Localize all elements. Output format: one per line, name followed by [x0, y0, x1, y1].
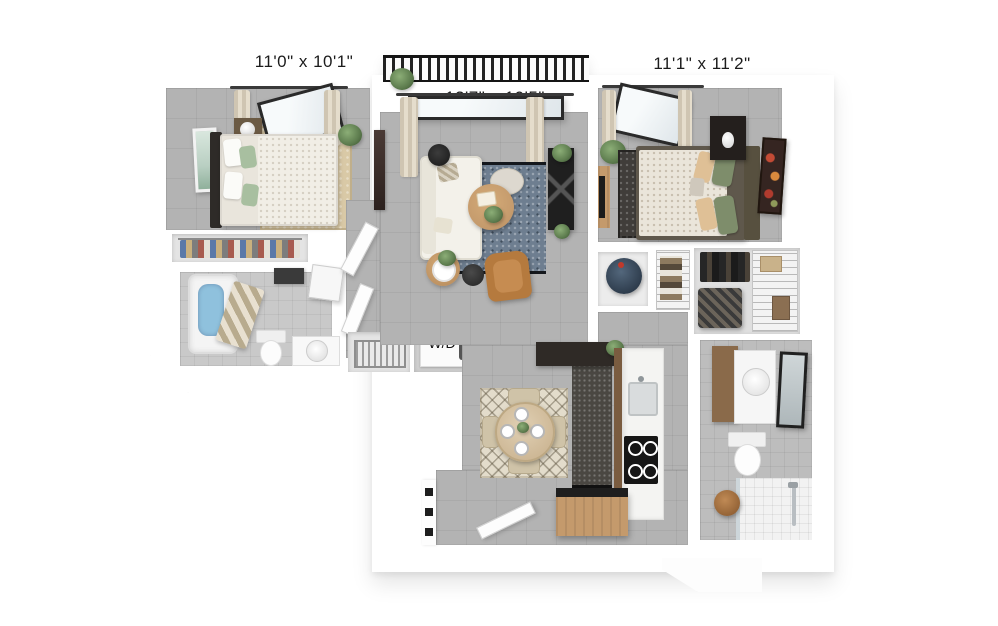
- burner: [643, 441, 658, 456]
- bedroom-2-curtain-rod: [602, 85, 704, 88]
- shower-fixture: [792, 486, 796, 526]
- dining-centerpiece: [517, 422, 529, 433]
- woven-bench: [698, 288, 742, 328]
- kitchen-counter: [622, 348, 664, 520]
- toilet-2-bowl: [734, 444, 761, 476]
- burner: [628, 441, 643, 456]
- hanging-clothes-dark: [700, 252, 750, 282]
- kitchen-tall-units: [536, 342, 614, 366]
- coffee-table-plant: [484, 206, 503, 223]
- door-stop: [425, 488, 433, 496]
- place-setting: [530, 424, 545, 439]
- kitchen-sink: [628, 382, 658, 416]
- living-plant: [438, 250, 456, 266]
- living-wall-art: [374, 130, 385, 210]
- bathroom-2-mirror: [776, 351, 808, 428]
- dresser-vase: [722, 132, 734, 148]
- hanging-clothes: [180, 240, 300, 258]
- burner: [643, 464, 658, 479]
- bedroom-1-duvet: [258, 136, 336, 224]
- wood-stool: [714, 490, 740, 516]
- side-table-black: [462, 264, 484, 286]
- pillow: [239, 145, 258, 169]
- burner: [628, 464, 643, 479]
- place-setting: [514, 407, 529, 422]
- kitchen-runner-rug: [572, 358, 612, 490]
- island-counter-top: [556, 488, 628, 497]
- door-stop: [425, 528, 433, 536]
- bathroom-1-sink: [306, 340, 328, 362]
- entry-stub-wall: [662, 558, 762, 592]
- pillow: [689, 177, 705, 196]
- door-stop: [425, 508, 433, 516]
- living-curtain-rod: [396, 93, 574, 96]
- shower: [736, 478, 812, 540]
- living-curtain-left: [400, 97, 418, 177]
- storage-box: [772, 296, 790, 320]
- bedroom-2-headboard: [744, 146, 760, 240]
- floor-lamp: [428, 144, 450, 166]
- bedroom-1-dimensions-label: 11'0" x 10'1": [228, 52, 380, 72]
- kitchen-faucet: [638, 376, 644, 382]
- floor-plan: 13'7" x 10'5" 11'0" x 10'1" 11'1" x 11'2…: [0, 0, 998, 626]
- water-heater: [606, 258, 642, 294]
- console-plant-top: [552, 144, 572, 162]
- console-plant-bottom: [554, 224, 570, 239]
- place-setting: [514, 441, 529, 456]
- toilet-bowl: [260, 340, 282, 366]
- place-setting: [500, 424, 515, 439]
- heater-valve: [618, 262, 624, 268]
- kitchen-island: [556, 492, 628, 536]
- bedroom-2-curtain-right: [678, 90, 692, 150]
- sofa-back-cushions: [422, 158, 436, 254]
- storage-box: [760, 256, 782, 272]
- armchair-seat: [492, 258, 524, 293]
- bathroom-2-sink: [742, 368, 770, 396]
- bedroom-1-plant: [338, 124, 362, 146]
- coffee-table-tray: [476, 191, 497, 208]
- bathroom-1-shelf: [274, 268, 304, 284]
- bathroom-1-mirror: [308, 264, 344, 302]
- pillow: [223, 171, 243, 199]
- linen-items: [660, 256, 682, 300]
- shower-head: [788, 482, 798, 488]
- pillow: [433, 217, 453, 235]
- tv: [599, 176, 605, 218]
- bedroom-2-dimensions-label: 11'1" x 11'2": [628, 54, 776, 74]
- pillow: [241, 183, 260, 207]
- balcony-plant: [390, 68, 414, 90]
